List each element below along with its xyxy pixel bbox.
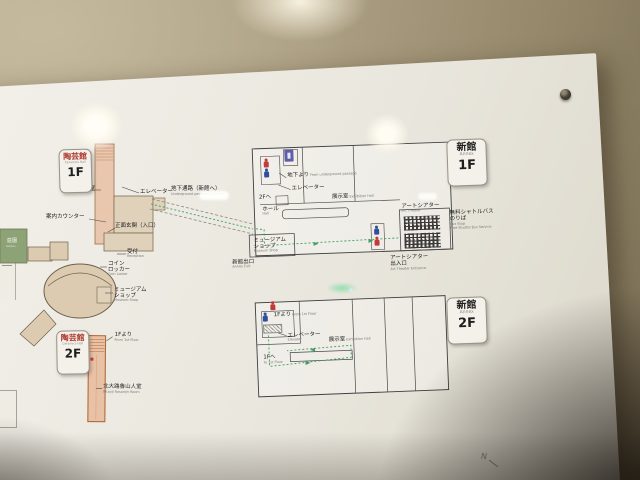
label-main-entrance: 正面玄関（入口） xyxy=(115,223,159,229)
theater-seats-upper xyxy=(404,215,440,230)
women-restroom-icon xyxy=(270,301,275,310)
corridor-2f-mark xyxy=(90,358,93,361)
label-from-1f-en: From 1st Floor xyxy=(115,339,139,343)
label-to-2f: 2Fへ xyxy=(259,194,271,200)
label-shop-en: Museum Shop xyxy=(114,299,138,303)
label-to-1f-en: To 1st Floor xyxy=(263,361,283,365)
label-hall-en: Hall xyxy=(262,212,269,216)
annex-1f-badge: 新館 Annex 1F xyxy=(446,138,488,186)
men-restroom-icon xyxy=(263,312,268,321)
badge-floor: 2F xyxy=(448,316,486,330)
women-restroom-icon xyxy=(264,158,269,167)
men-restroom-icon xyxy=(374,226,379,235)
men-restroom-icon xyxy=(264,168,269,177)
theater-seats-lower xyxy=(404,232,441,248)
label-garden: 庭園 xyxy=(7,239,17,245)
walkway-west xyxy=(28,247,52,261)
annex-2f-badge: 新館 Annex 2F xyxy=(446,296,488,344)
label-locker-en: Coin Locker xyxy=(108,273,128,277)
ceramics-1f-badge: 陶芸館 Ceramics Hall 1F xyxy=(58,149,92,194)
shop-room-1f xyxy=(97,287,111,303)
label-elevator-annex2f-en: Elevator xyxy=(288,338,302,342)
label-elevator: エレベーター xyxy=(140,189,173,195)
badge-floor: 1F xyxy=(60,166,91,179)
map-fragment-bottom-left xyxy=(0,390,17,428)
north-compass: N xyxy=(481,452,487,461)
elevator-shaft-hatch xyxy=(263,324,282,334)
ceramics-hall-2f-map: 陶芸館 Ceramics Hall 2F 1Fより From 1st Floor… xyxy=(49,324,220,480)
walkway-center xyxy=(50,242,68,260)
corridor-1f xyxy=(95,144,114,244)
compass-letter: N xyxy=(481,452,487,461)
label-info-counter: 案内カウンター xyxy=(46,214,85,220)
panel-mount-screw xyxy=(560,89,571,100)
badge-hall-sub: Ceramics Hall xyxy=(57,342,88,346)
label-rosanjin-room-en: Kitaoji Rosanjin Room xyxy=(103,391,140,395)
label-underground-passage-en: Underground passage to Annex xyxy=(171,193,225,197)
badge-hall-sub: Ceramics Hall xyxy=(60,161,91,165)
label-garden-en: Garden xyxy=(6,246,16,249)
label-art-theater-en: Art Theater xyxy=(401,209,420,213)
photo-floor-map-sign: 陶芸館 Ceramics Hall 1F 河井寛次郎室 エレベーター 地下通路（… xyxy=(0,0,640,480)
label-reception-en: Reception xyxy=(127,255,144,259)
elevator-icon xyxy=(284,149,293,161)
ceramics-2f-badge: 陶芸館 Ceramics Hall 2F xyxy=(56,330,90,375)
badge-floor: 1F xyxy=(448,158,486,172)
label-annex-exit-en: Annex Exit xyxy=(232,265,250,269)
label-elevator-annex1f: エレベーター xyxy=(292,184,325,191)
women-restroom-icon xyxy=(374,237,379,246)
badge-floor: 2F xyxy=(57,347,88,360)
